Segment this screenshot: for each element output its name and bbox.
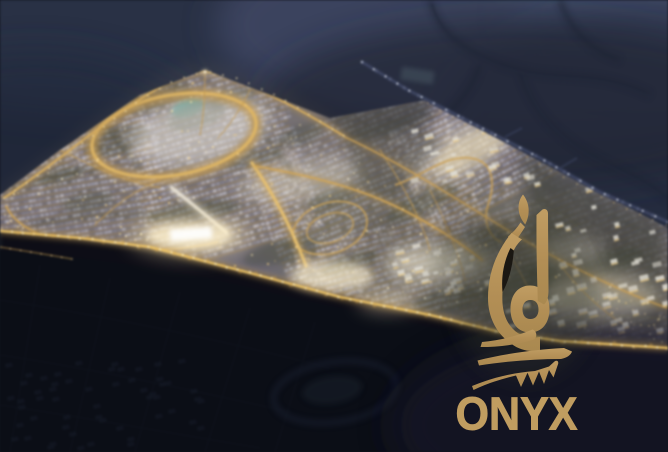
svg-text:ONYX: ONYX bbox=[456, 388, 578, 440]
